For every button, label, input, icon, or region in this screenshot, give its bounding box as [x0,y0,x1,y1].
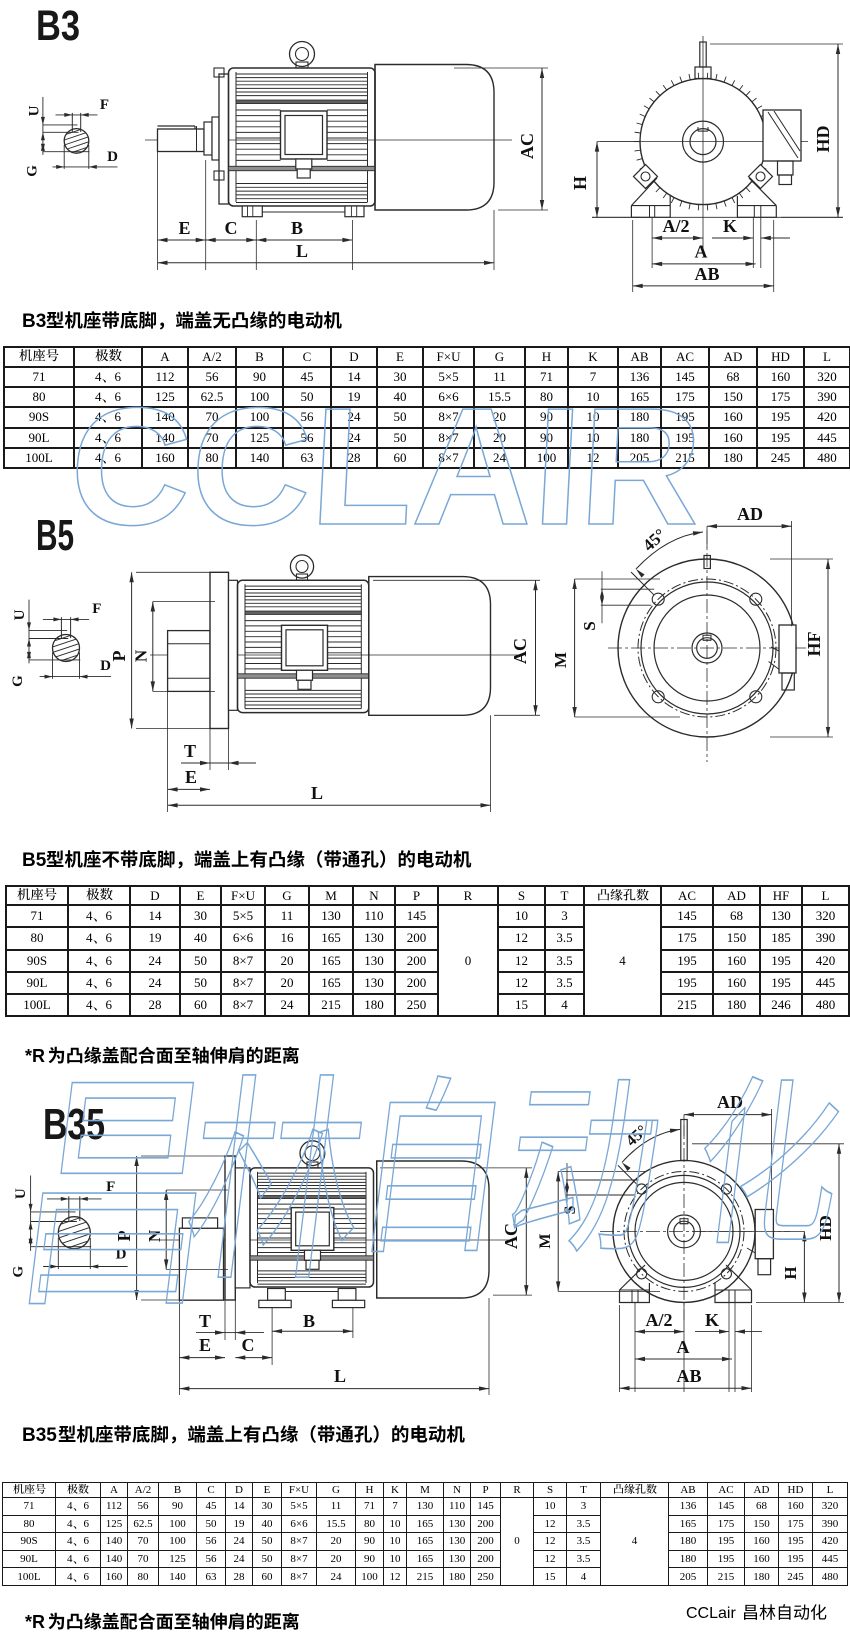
svg-text:F: F [100,97,109,113]
svg-text:B3: B3 [22,311,46,332]
svg-text:HD: HD [816,1215,835,1241]
svg-text:*R: *R [25,1046,45,1066]
svg-text:45°: 45° [623,1122,651,1150]
svg-text:T: T [199,1311,211,1331]
svg-text:N: N [132,649,151,662]
svg-text:U: U [13,1188,29,1199]
svg-text:E: E [199,1335,211,1355]
svg-text:A: A [677,1337,690,1357]
svg-text:K: K [723,216,737,236]
svg-text:G: G [25,165,41,177]
svg-text:A: A [695,242,708,262]
svg-text:P: P [114,1231,134,1242]
svg-text:HD: HD [813,125,833,152]
svg-text:U: U [27,105,43,116]
svg-text:B35: B35 [43,1100,105,1149]
svg-text:C: C [242,1335,255,1355]
svg-text:G: G [10,675,26,687]
svg-text:B35: B35 [22,1425,57,1446]
svg-text:H: H [570,176,590,190]
svg-text:L: L [334,1366,346,1386]
svg-text:A/2: A/2 [663,216,690,236]
svg-text:P: P [109,651,129,662]
svg-text:D: D [107,149,118,165]
svg-text:AB: AB [694,264,719,284]
svg-text:D: D [100,658,111,674]
svg-text:45°: 45° [639,525,669,555]
svg-text:M: M [551,652,570,668]
svg-text:AC: AC [517,133,537,159]
svg-text:AD: AD [717,1092,743,1112]
svg-text:B3: B3 [36,2,80,50]
svg-text:D: D [116,1247,127,1263]
svg-text:T: T [184,741,196,761]
svg-text:AD: AD [737,504,763,524]
svg-text:E: E [185,767,197,787]
svg-text:*R: *R [25,1612,45,1632]
svg-text:S: S [562,1205,579,1214]
svg-text:E: E [178,218,190,238]
svg-text:CCLair: CCLair [686,1605,736,1622]
svg-text:G: G [10,1266,26,1278]
svg-text:F: F [106,1179,115,1195]
svg-text:AC: AC [501,1223,521,1249]
svg-text:B: B [291,218,303,238]
svg-text:A/2: A/2 [646,1310,673,1330]
svg-text:AB: AB [676,1366,701,1386]
svg-text:B: B [303,1311,315,1331]
svg-text:K: K [705,1310,719,1330]
svg-text:B5: B5 [36,511,74,560]
svg-text:S: S [580,621,599,630]
svg-text:U: U [12,609,28,620]
svg-text:HF: HF [804,631,824,656]
svg-text:F: F [92,601,101,617]
svg-text:L: L [311,783,323,803]
svg-text:M: M [537,1233,554,1248]
svg-text:AC: AC [510,638,530,664]
svg-text:L: L [296,241,308,261]
svg-text:C: C [225,218,238,238]
svg-text:B5: B5 [22,850,47,871]
svg-text:H: H [781,1266,800,1279]
svg-text:N: N [145,1229,164,1242]
